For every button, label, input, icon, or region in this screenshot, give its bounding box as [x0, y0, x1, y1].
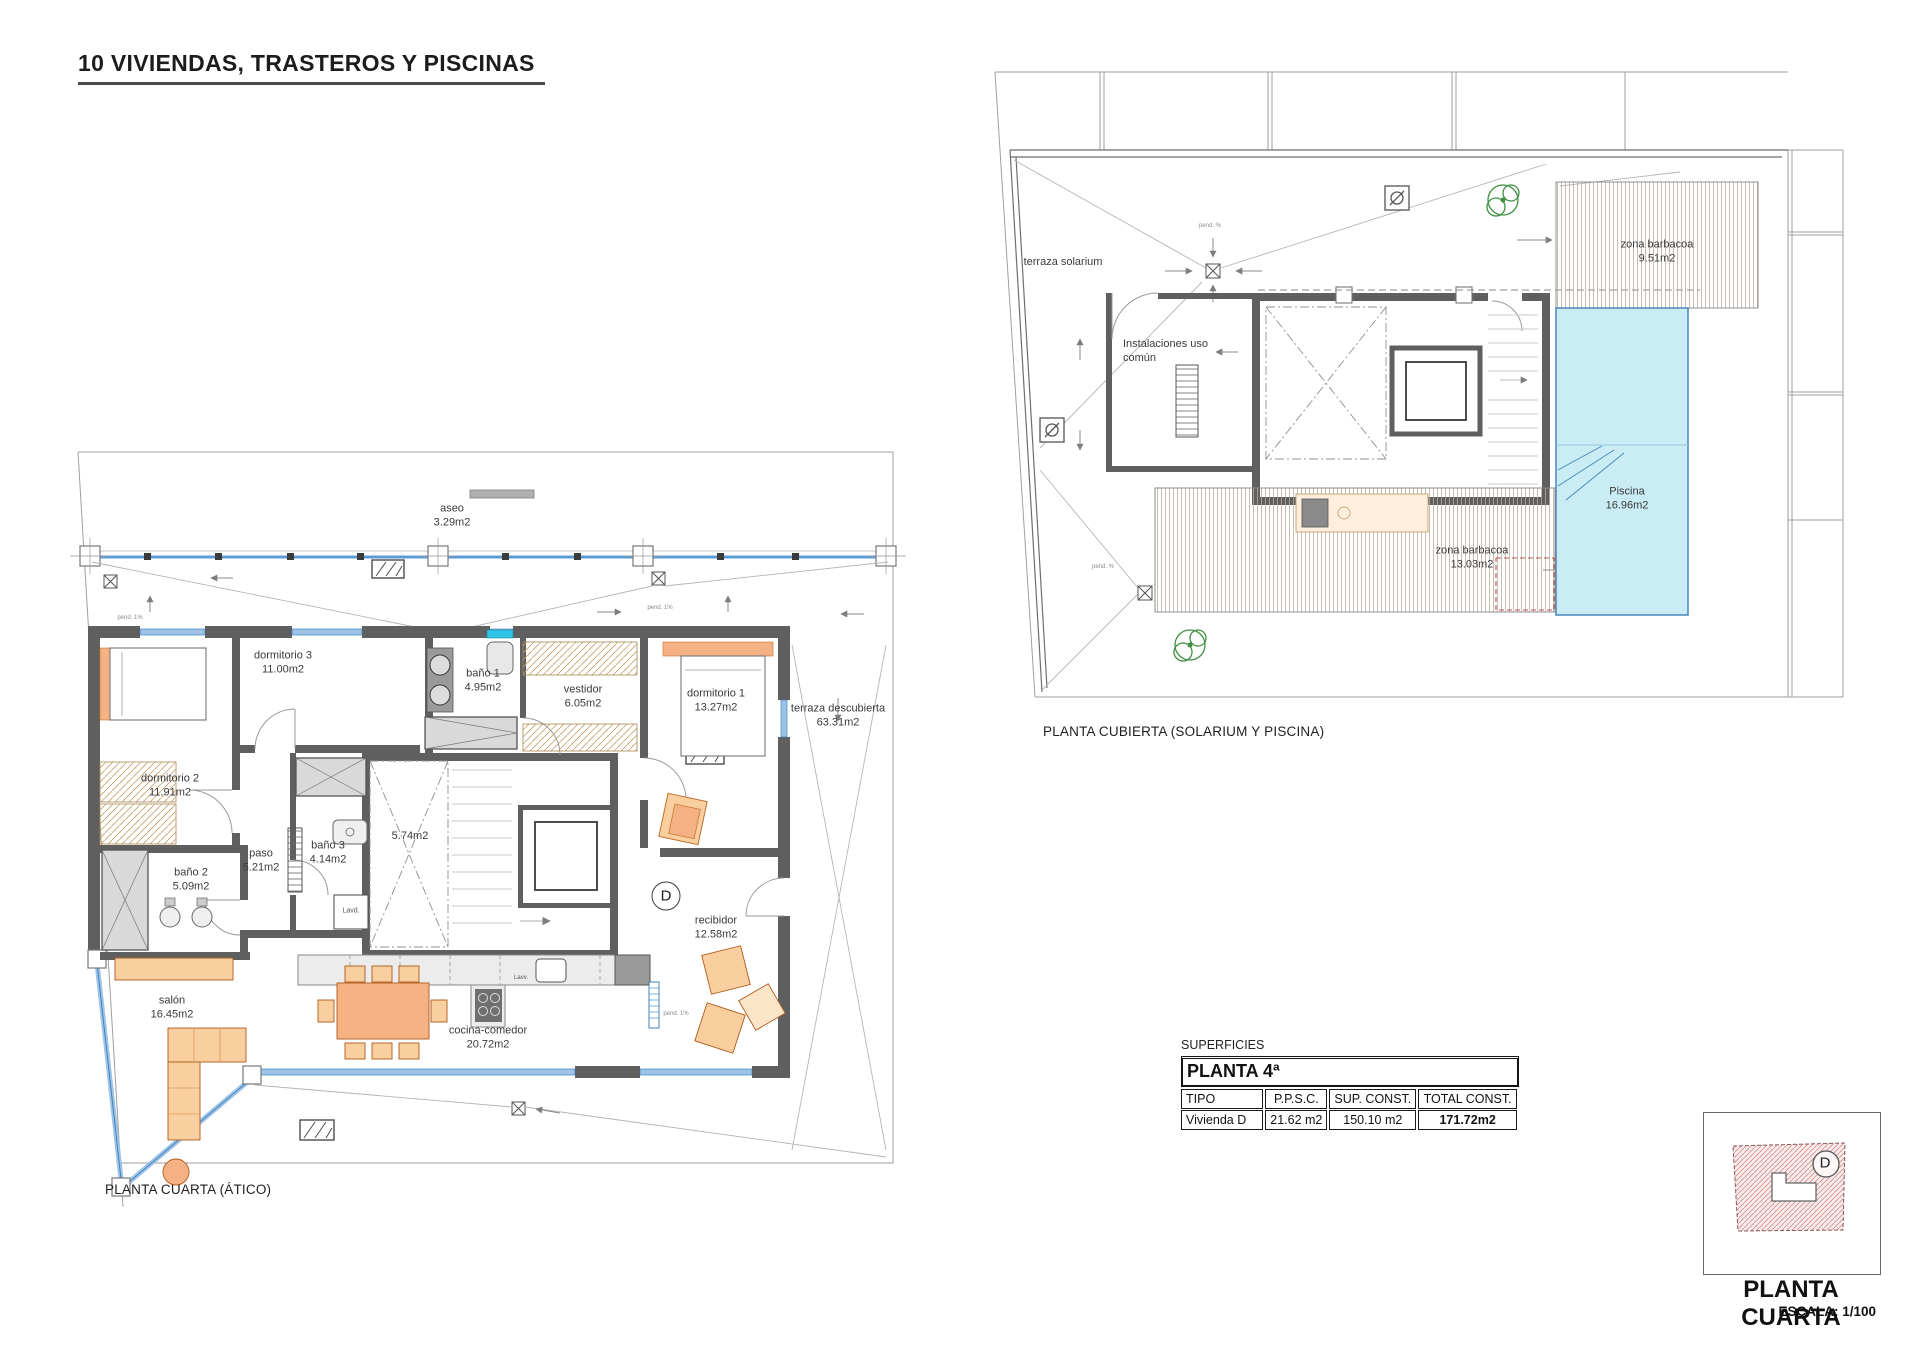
- location-key-drawing: [1704, 1113, 1880, 1274]
- cell-vivienda: Vivienda D: [1181, 1110, 1263, 1130]
- room-label-piscina: Piscina16.96m2: [1606, 485, 1649, 513]
- room-label-salon: salón16.45m2: [151, 994, 194, 1022]
- caption-planta-cuarta: PLANTA CUARTA (ÁTICO): [105, 1182, 271, 1197]
- room-label-bano1: baño 14.95m2: [465, 667, 502, 695]
- room-label-vestidor: vestidor6.05m2: [564, 683, 603, 711]
- room-label-terraza: terraza descubierta63.31m2: [791, 702, 885, 730]
- cubierta-drawing: [995, 72, 1843, 697]
- caption-planta-cubierta: PLANTA CUBIERTA (SOLARIUM Y PISCINA): [1043, 724, 1324, 739]
- bath2-fixtures: [102, 850, 212, 950]
- surfaces-grid: TIPO P.P.S.C. SUP. CONST. TOTAL CONST. V…: [1179, 1088, 1519, 1131]
- dorm2-furniture: [100, 648, 206, 844]
- surfaces-data-row: Vivienda D 21.62 m2 150.10 m2 171.72m2: [1181, 1110, 1517, 1130]
- dorm1-furniture: [659, 642, 773, 845]
- surfaces-header-row: TIPO P.P.S.C. SUP. CONST. TOTAL CONST.: [1181, 1089, 1517, 1109]
- slope-note: pend. %: [1092, 564, 1114, 570]
- room-label-paso: paso5.21m2: [243, 847, 280, 875]
- dishwasher-label: Lavv.: [514, 975, 528, 981]
- surfaces-floor-header: PLANTA 4ª: [1181, 1056, 1519, 1087]
- recibidor-seats: [695, 946, 785, 1053]
- room-label-bano3: baño 34.14m2: [310, 839, 347, 867]
- atico-drawing: [70, 452, 906, 1207]
- room-label-dormitorio2: dormitorio 211.91m2: [141, 772, 199, 800]
- legend-unit-letter: D: [1812, 1150, 1839, 1177]
- room-label-instalaciones: Instalaciones uso común: [1123, 338, 1211, 366]
- room-label-dormitorio3: dormitorio 311.00m2: [254, 649, 312, 677]
- stair-core: [370, 761, 597, 947]
- vent-symbols: [1040, 186, 1409, 442]
- room-label-cocina: cocina-comedor20.72m2: [449, 1024, 527, 1052]
- aseo-rooflight: [470, 490, 534, 498]
- unit-letter-badge: D: [652, 882, 681, 911]
- col-tipo: TIPO: [1181, 1089, 1263, 1109]
- surfaces-table: SUPERFICIES PLANTA 4ª TIPO P.P.S.C. SUP.…: [1181, 1038, 1519, 1131]
- plans-linework: [0, 0, 1920, 1357]
- room-label-solarium: terraza solarium: [1024, 256, 1103, 270]
- col-total-const: TOTAL CONST.: [1418, 1089, 1517, 1109]
- drawing-sheet: 10 VIVIENDAS, TRASTEROS Y PISCINAS: [0, 0, 1920, 1357]
- room-label-barbacoa-2: zona barbacoa13.03m2: [1436, 544, 1509, 572]
- pool: [1556, 308, 1688, 615]
- slope-note: pend. 1%: [647, 605, 672, 611]
- col-sup-const: SUP. CONST.: [1329, 1089, 1416, 1109]
- location-key-box: [1703, 1112, 1881, 1275]
- room-label-shaft: 5.74m2: [392, 830, 429, 844]
- surfaces-section-label: SUPERFICIES: [1181, 1038, 1519, 1052]
- room-label-dormitorio1: dormitorio 113.27m2: [687, 687, 745, 715]
- room-label-aseo: aseo3.29m2: [434, 502, 471, 530]
- instalaciones-room: [1106, 293, 1258, 472]
- cell-ppsc: 21.62 m2: [1265, 1110, 1327, 1130]
- col-ppsc: P.P.S.C.: [1265, 1089, 1327, 1109]
- washer-label: Lavd.: [342, 908, 359, 915]
- cell-sup-const: 150.10 m2: [1329, 1110, 1416, 1130]
- slope-note: pend. %: [1199, 223, 1221, 229]
- room-label-recibidor: recibidor12.58m2: [695, 914, 738, 942]
- slope-note: pend. 1%: [117, 615, 142, 621]
- legend-scale: ESCALA: 1/100: [1698, 1304, 1876, 1319]
- slope-note: pend. 1%: [663, 1011, 688, 1017]
- cell-total-const: 171.72m2: [1418, 1110, 1517, 1130]
- room-label-bano2: baño 25.09m2: [173, 866, 210, 894]
- room-label-barbacoa-1: zona barbacoa9.51m2: [1621, 238, 1694, 266]
- elevator-car: [535, 822, 597, 890]
- salon-furniture: [115, 958, 246, 1185]
